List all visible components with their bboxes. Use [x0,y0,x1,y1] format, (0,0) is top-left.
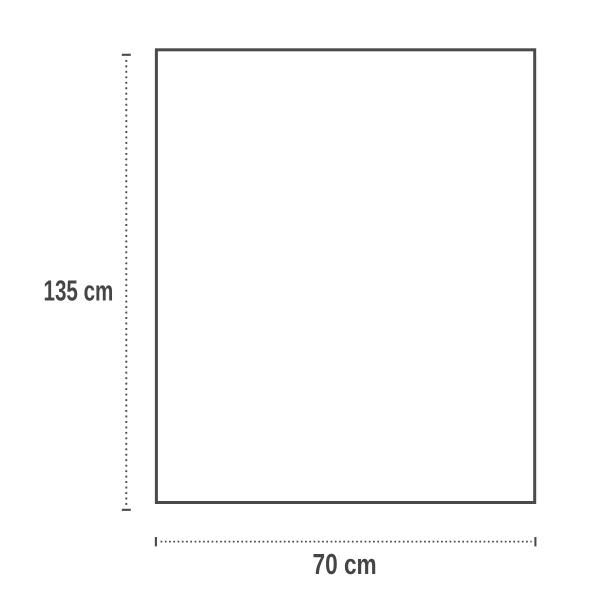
svg-text:70 cm: 70 cm [313,547,377,580]
svg-text:135 cm: 135 cm [44,275,114,307]
